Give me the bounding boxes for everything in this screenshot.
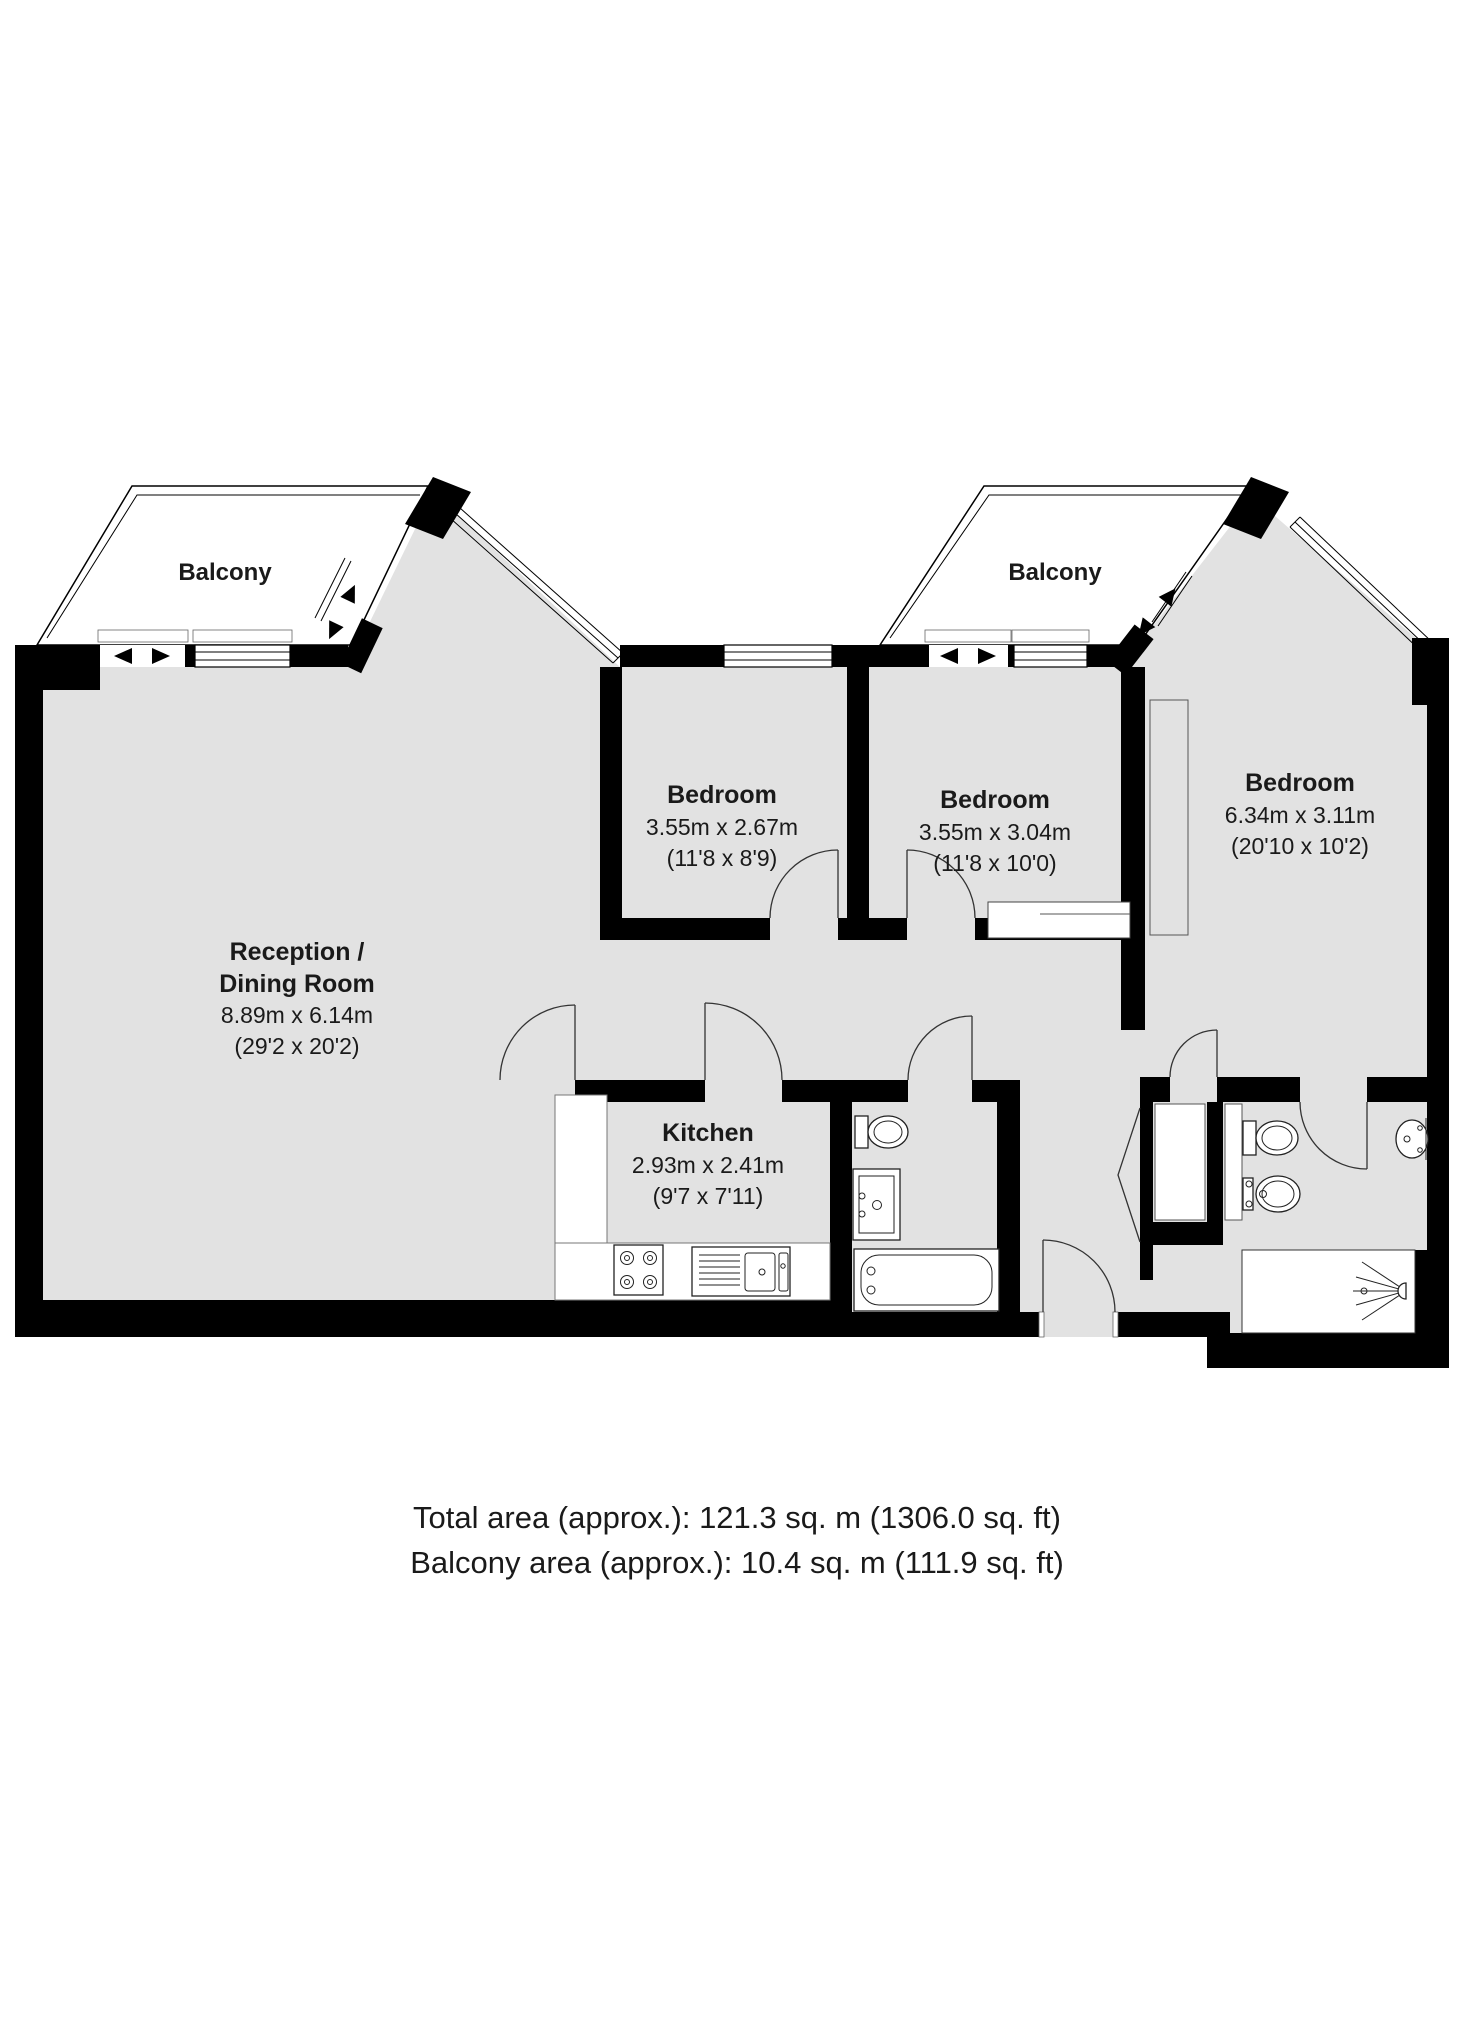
bidet-icon (1243, 1176, 1300, 1212)
bedroom2-dims-ft: (11'8 x 10'0) (933, 850, 1056, 876)
kitchen-dims-ft: (9'7 x 7'11) (653, 1183, 764, 1209)
bedroom2-label: Bedroom (940, 786, 1050, 814)
bedroom3-dims-m: 6.34m x 3.11m (1225, 802, 1375, 828)
sink-icon (692, 1247, 790, 1296)
ensuite-toilet-icon (1243, 1121, 1298, 1155)
washbasin-icon (853, 1169, 900, 1240)
bedroom2-dims-m: 3.55m x 3.04m (919, 819, 1071, 845)
bedroom2-wardrobe (988, 902, 1130, 938)
kitchen-fixtures (614, 1245, 790, 1296)
hall-cupboard (1155, 1104, 1205, 1220)
bedroom3-label: Bedroom (1245, 769, 1355, 797)
kitchen-label: Kitchen (662, 1119, 754, 1147)
bathtub-icon (854, 1249, 999, 1311)
kitchen-dims-m: 2.93m x 2.41m (632, 1152, 784, 1178)
balcony-left-slider-opening (100, 645, 185, 667)
bedroom2-window-icon (1014, 645, 1087, 667)
bedroom1-label: Bedroom (667, 781, 777, 809)
bedroom3-floor (1145, 667, 1427, 1102)
bedroom3-dims-ft: (20'10 x 10'2) (1231, 833, 1369, 859)
corridor-floor (575, 940, 1145, 1102)
balcony-right-label: Balcony (1008, 559, 1102, 586)
floorplan-page: Balcony Balcony Reception / Dining Room … (0, 0, 1463, 2025)
total-area-text: Total area (approx.): 121.3 sq. m (1306.… (413, 1500, 1061, 1535)
balcony-left-label: Balcony (178, 559, 272, 586)
bedroom1-dims-ft: (11'8 x 8'9) (667, 845, 778, 871)
duct-cupboard (1225, 1104, 1242, 1220)
reception-label-line1: Reception / (230, 938, 365, 966)
bedroom1-dims-m: 3.55m x 2.67m (646, 814, 798, 840)
hob-icon (614, 1245, 663, 1295)
floorplan-svg: Balcony Balcony Reception / Dining Room … (0, 0, 1463, 2025)
reception-dims-m: 8.89m x 6.14m (221, 1002, 373, 1028)
toilet-icon (855, 1116, 908, 1148)
shower-icon (1242, 1250, 1415, 1333)
entrance-threshold-floor (1043, 1312, 1117, 1337)
reception-label-line2: Dining Room (219, 970, 375, 998)
reception-dims-ft: (29'2 x 20'2) (234, 1033, 359, 1059)
reception-window-icon (195, 645, 290, 667)
balcony-area-text: Balcony area (approx.): 10.4 sq. m (111.… (410, 1545, 1064, 1580)
bedroom1-window-icon (724, 645, 832, 667)
